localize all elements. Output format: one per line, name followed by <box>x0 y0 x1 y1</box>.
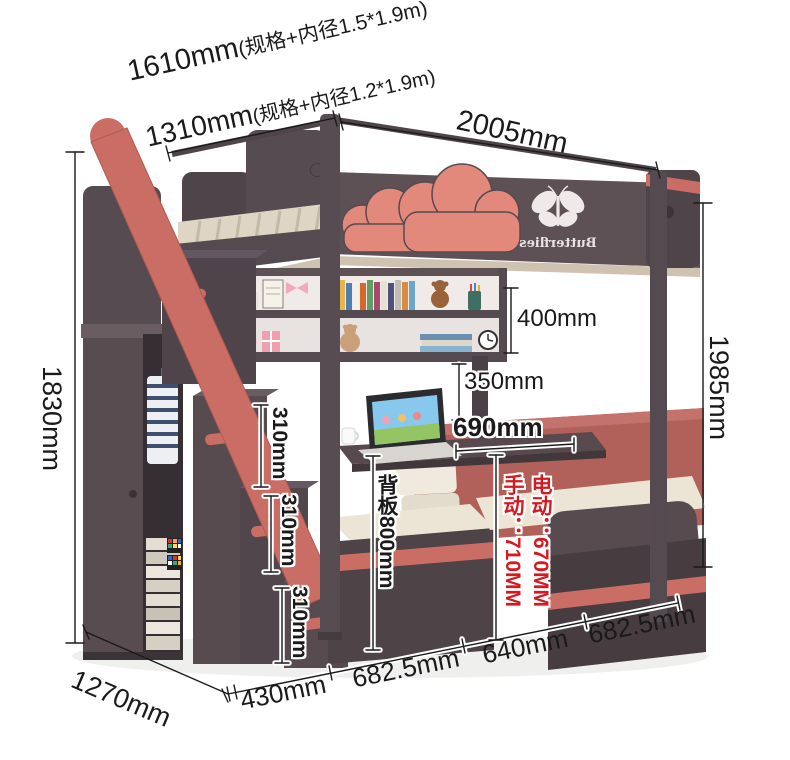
dim-step-height-2-label: 310mm <box>278 494 299 566</box>
product-dimension-diagram: Butterflies <box>0 0 790 760</box>
dim-step-height-1-label: 310mm <box>269 407 290 479</box>
mug <box>342 428 358 444</box>
dim-left-height-label: 1830mm <box>38 366 65 471</box>
desk-lift-electric-label: 电动：670MM <box>526 474 554 607</box>
dim-desk-clearance-label: 350mm <box>464 370 544 394</box>
gift-box <box>262 331 280 352</box>
monkey-toy <box>431 280 449 308</box>
desk-lift-labels: 电动：670MM 手动：710MM <box>498 474 554 607</box>
dim-shelf-height-label: 400mm <box>517 307 597 331</box>
door-knob <box>129 490 137 498</box>
brand-text: Butterflies <box>519 236 597 251</box>
dim-desk-width-label: 690mm <box>453 414 543 440</box>
desk-lift-manual-label: 手动：710MM <box>498 474 526 607</box>
dim-step-height-3-label: 310mm <box>289 586 310 658</box>
bed-illustration: Butterflies <box>0 0 790 760</box>
clock <box>479 331 497 349</box>
folded-blankets <box>146 538 180 650</box>
photo-frame <box>263 280 283 308</box>
dim-backboard-label: 背板800mm <box>376 474 397 588</box>
book-stack <box>420 334 472 352</box>
dim-right-height-label: 1985mm <box>705 335 732 440</box>
